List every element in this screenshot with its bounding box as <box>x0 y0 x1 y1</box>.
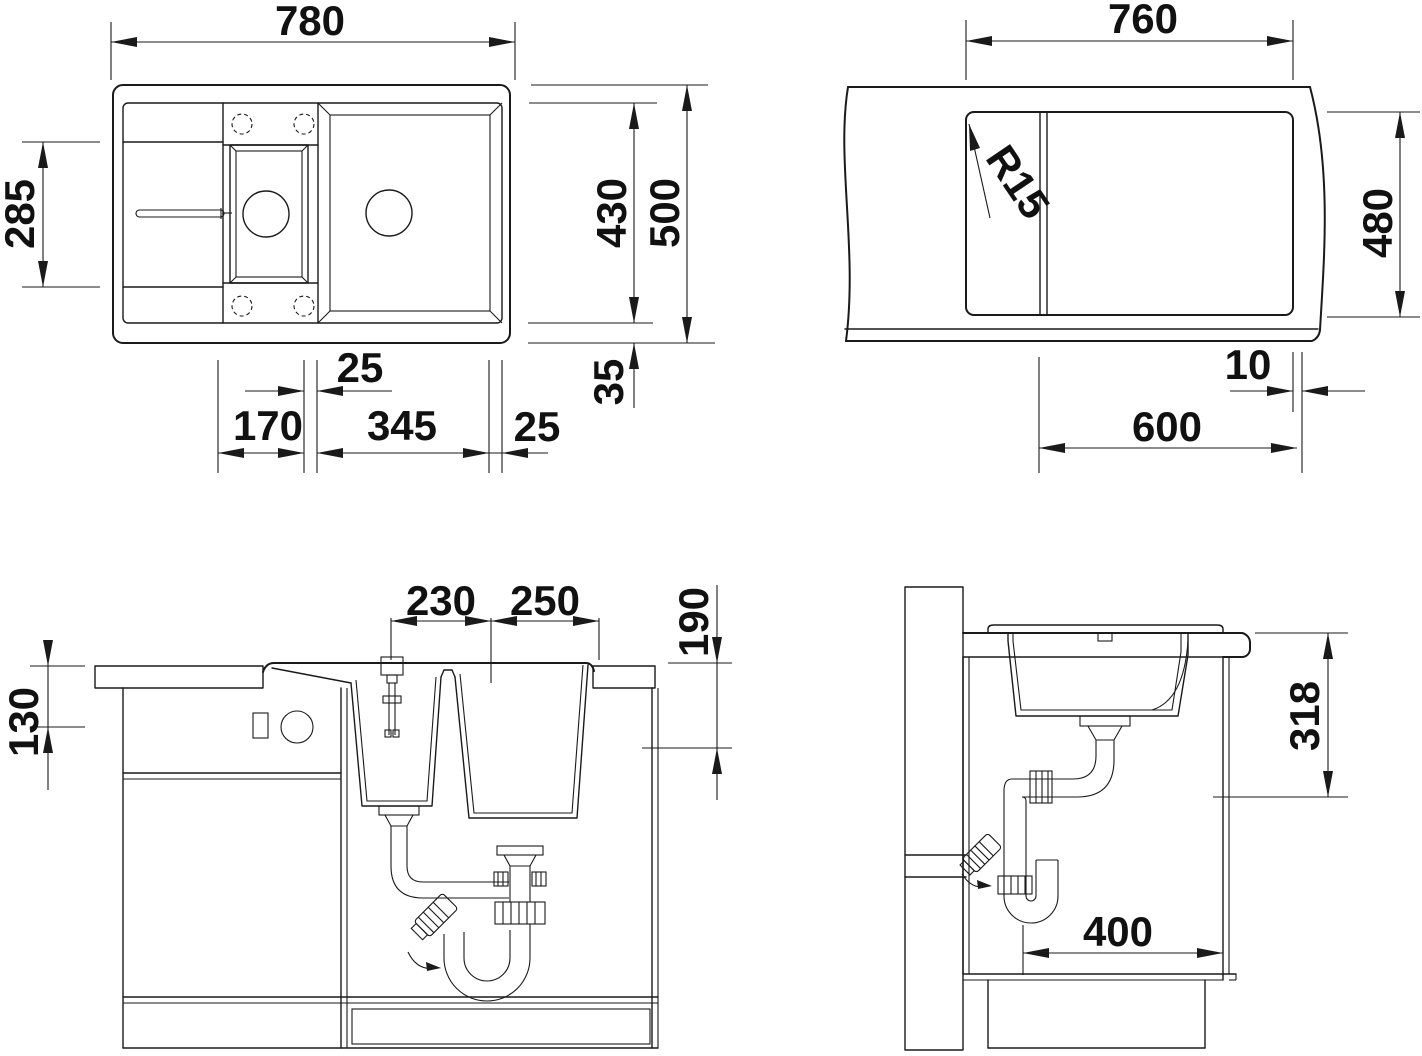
control-knob <box>281 711 313 743</box>
sink-inner-rim <box>123 103 502 323</box>
dim-label-230: 230 <box>406 577 476 624</box>
small-bowl-drain <box>243 191 289 237</box>
front-section-view: 230 250 190 130 <box>0 577 732 1048</box>
bowl-section-side <box>1008 633 1188 716</box>
dim-190: 190 <box>642 585 732 800</box>
dim-label-780: 780 <box>275 0 345 44</box>
sink-section <box>263 663 594 818</box>
dim-label-130: 130 <box>0 687 47 757</box>
side-section-view: 318 400 <box>905 587 1348 1050</box>
control-switch <box>253 713 268 738</box>
small-bowl-plan <box>230 145 308 283</box>
radius-callout: R15 <box>969 124 1059 227</box>
dim-760: 760 <box>966 0 1293 80</box>
dim-400: 400 <box>1023 908 1223 975</box>
dim-label-35: 35 <box>585 359 632 406</box>
dim-430-500-35: 430 500 35 <box>528 85 715 408</box>
dim-bottom-chain: 25 170 345 25 <box>218 344 560 473</box>
dim-label-400: 400 <box>1083 908 1153 955</box>
plan-view: 780 285 430 500 35 <box>0 0 715 473</box>
dim-780: 780 <box>111 0 515 80</box>
dim-label-25-right: 25 <box>514 403 561 450</box>
dim-10: 10 <box>1225 341 1365 473</box>
tap-mounting <box>381 657 403 737</box>
large-bowl-drain <box>366 190 412 236</box>
technical-drawing-page: 780 285 430 500 35 <box>0 0 1422 1056</box>
wall-section <box>905 587 966 1050</box>
dim-230-250: 230 250 <box>391 577 599 683</box>
dim-label-345: 345 <box>367 402 437 449</box>
dim-285: 285 <box>0 142 100 287</box>
drawing-canvas: 780 285 430 500 35 <box>0 0 1422 1056</box>
dim-label-190: 190 <box>670 587 717 657</box>
wall-outlet-fitting <box>409 893 458 942</box>
dim-label-760: 760 <box>1108 0 1178 42</box>
dim-130: 130 <box>0 640 85 790</box>
dim-label-480: 480 <box>1354 188 1401 258</box>
dim-label-10: 10 <box>1225 341 1272 388</box>
dim-label-25-gap: 25 <box>337 344 384 391</box>
cutout-view: R15 760 480 10 <box>844 0 1420 473</box>
sink-outer-rim <box>113 85 510 343</box>
countertop-section <box>95 666 655 688</box>
dim-label-500: 500 <box>641 178 688 248</box>
dim-label-170: 170 <box>233 402 303 449</box>
dim-label-318: 318 <box>1281 681 1328 751</box>
dim-label-600: 600 <box>1132 403 1202 450</box>
dim-label-285: 285 <box>0 179 43 249</box>
drain-groove <box>136 208 232 219</box>
countertop-outline <box>844 87 1324 341</box>
large-bowl-plan <box>318 103 502 323</box>
drain-plumbing-front <box>379 806 546 1001</box>
drain-plumbing-side <box>958 716 1130 923</box>
dim-label-250: 250 <box>510 577 580 624</box>
dim-label-430: 430 <box>588 178 635 248</box>
dim-480: 480 <box>1327 112 1420 317</box>
